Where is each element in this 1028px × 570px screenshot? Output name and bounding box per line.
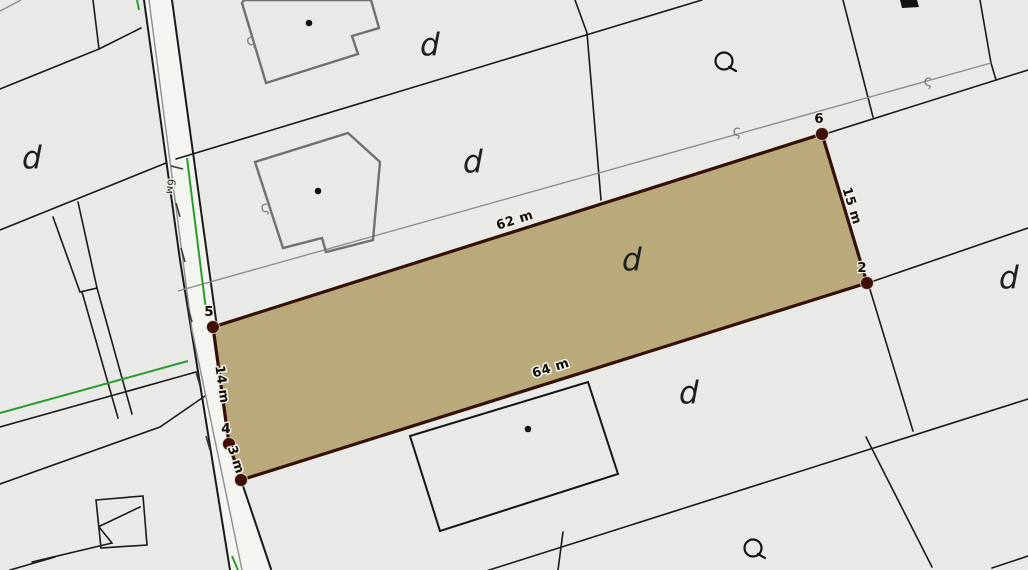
squiggle-symbol: ς [924,72,933,90]
vertex-number-label: 5 [204,304,213,320]
land-use-label: d [420,27,440,63]
building-center-dot [525,426,532,433]
land-use-label: d [622,242,642,278]
building-center-dot [315,188,322,195]
land-use-label: d [999,260,1019,296]
land-use-label: d [463,144,483,180]
building-center-dot [306,20,313,27]
vertex-marker[interactable] [816,128,829,141]
land-use-label: d [679,375,699,411]
vertex-marker[interactable] [861,277,874,290]
vertex-number-label: 2 [857,260,866,276]
map-viewport: ςςςς 562462 m15 m64 m14 m3 mdddddd6м [0,0,1028,570]
vertex-marker[interactable] [207,321,220,334]
vertex-marker[interactable] [235,474,248,487]
vertex-number-label: 4 [221,421,230,437]
vertex-number-label: 6 [814,111,823,127]
land-use-label: d [22,140,42,176]
squiggle-symbol: ς [733,122,742,140]
road-label: 6м [163,178,178,195]
map-canvas[interactable]: ςςςς 562462 m15 m64 m14 m3 mdddddd6м [0,0,1028,570]
